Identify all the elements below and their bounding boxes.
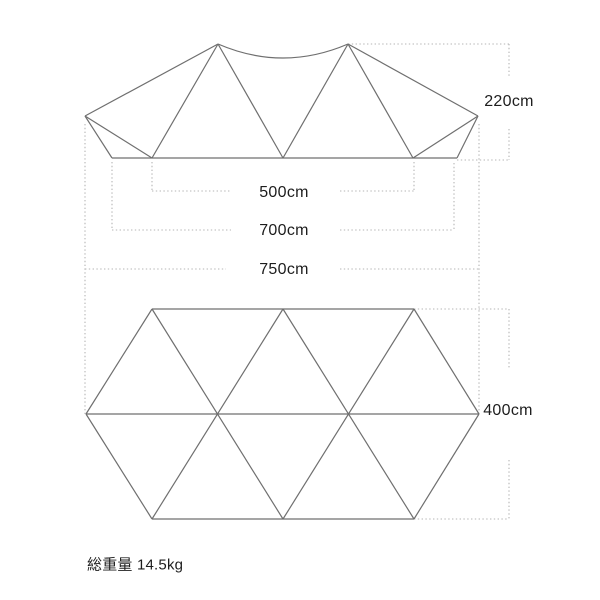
front-elevation-line xyxy=(348,44,413,158)
dimension-label-total-width: 750cm xyxy=(259,262,309,278)
floor-plan-line xyxy=(86,414,152,519)
front-elevation-line xyxy=(85,116,152,158)
floor-plan-line xyxy=(414,309,479,414)
tent-spec-diagram: 220cm 500cm 700cm 750cm 400cm 総重量 14.5kg xyxy=(0,0,600,600)
dimension-label-height: 220cm xyxy=(484,94,534,110)
front-elevation-line xyxy=(413,116,478,158)
floor-plan-line xyxy=(86,309,152,414)
front-elevation-line xyxy=(218,44,283,158)
total-weight-label: 総重量 14.5kg xyxy=(87,558,183,573)
ridge-sag-curve xyxy=(218,44,348,58)
dimension-label-depth: 400cm xyxy=(483,403,533,419)
front-elevation-line xyxy=(283,44,348,158)
tent-diagram-lines xyxy=(0,0,600,600)
dimension-guide-lines xyxy=(85,44,509,519)
front-elevation-line xyxy=(348,44,478,116)
front-elevation-outline xyxy=(85,44,478,158)
floor-plan-line xyxy=(414,414,479,519)
dimension-label-body-width: 700cm xyxy=(259,223,309,239)
dimension-label-ridge-width: 500cm xyxy=(259,185,309,201)
front-elevation-line xyxy=(152,44,218,158)
front-elevation-line xyxy=(85,116,112,158)
floor-plan-outline xyxy=(86,309,479,519)
front-elevation-line xyxy=(85,44,218,116)
